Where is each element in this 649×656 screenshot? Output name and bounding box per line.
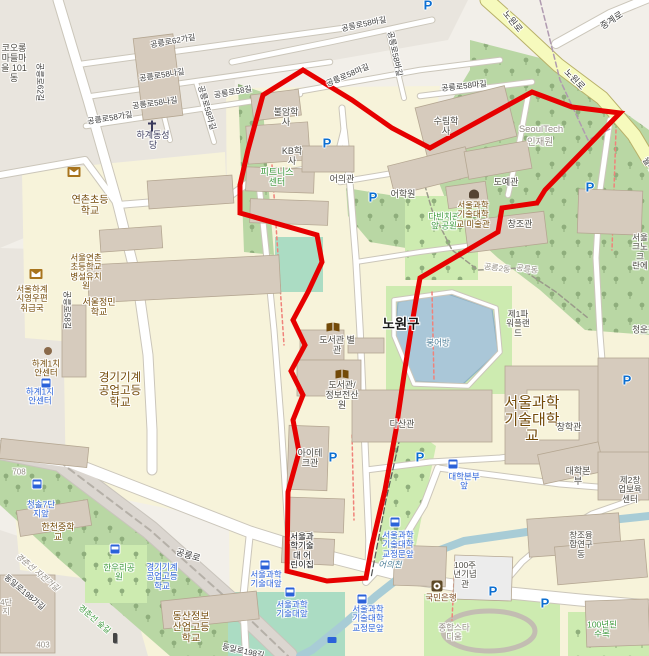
parking-icon[interactable]: P xyxy=(489,584,498,599)
district-gongneung2dong: 공릉2동 xyxy=(483,263,510,275)
pond-name: 붕어방 xyxy=(426,338,449,347)
school-gyeonggi-name: 경기기계 공업고등 학교 xyxy=(99,372,141,410)
district-nowongu: 노원구 xyxy=(382,318,419,333)
road-name-dongilro198gil: 동일로198길 xyxy=(221,643,265,656)
post-icon[interactable] xyxy=(30,269,43,279)
poi-seoultech-en: SeoulTech xyxy=(519,125,563,135)
road-name-junggyero: 중계로 xyxy=(599,10,625,32)
park-davinci-name: 다빈치관 앞 공원 xyxy=(428,213,459,232)
road-name-gongneungro: 공릉로 xyxy=(175,548,202,564)
road-name-58magil-1: 공릉로58마길 xyxy=(325,63,371,89)
parking-icon[interactable]: P xyxy=(424,0,433,13)
road-name-dongilro198gagil: 동일로198가길 xyxy=(2,574,46,613)
parking-icon[interactable]: P xyxy=(329,450,338,465)
road-name-58ragil: 공릉로58라길 xyxy=(195,85,216,131)
parking-icon[interactable]: P xyxy=(369,190,378,205)
bus-icon[interactable] xyxy=(32,479,43,490)
addr-708: 708 xyxy=(12,469,25,478)
school-yeonchon-kinder: 서울연촌 초등학교 병설유치 원 xyxy=(70,253,101,290)
police-icon[interactable] xyxy=(44,347,52,355)
road-name-wolgyero: 월계로 xyxy=(640,156,649,179)
poi-police-name: 하계1치 안센터 xyxy=(32,360,60,379)
bldg-lib-annex-name: 도서관 별 관 xyxy=(319,336,355,356)
road-name-58nagil-2: 공릉로58나길 xyxy=(132,96,178,111)
dorm-bulam-name: 불암학 사 xyxy=(274,108,299,128)
road-name-58gil-1: 공릉로58길 xyxy=(213,85,252,100)
dorm-surim-name: 수림학 사 xyxy=(434,117,459,137)
parking-icon[interactable]: P xyxy=(541,596,550,611)
map-label-layer: 코오롱 마들마 을 101 동공릉로62가길공릉로58나길공릉로58나길공릉로5… xyxy=(0,0,649,656)
bldg-changjo-name: 창조관 xyxy=(508,220,533,230)
bus-icon[interactable] xyxy=(41,378,52,389)
bldg-100th-name: 100주 년기념 관 xyxy=(453,561,476,589)
school-hancheon-name: 한천중학 교 xyxy=(41,523,74,543)
post-icon[interactable] xyxy=(68,167,81,177)
book-icon[interactable] xyxy=(336,370,349,379)
bldg-dasan-name: 다산관 xyxy=(390,420,415,430)
stadium-name: 종합스타 디움 xyxy=(438,624,469,643)
bldg-technopark-name: 서울 크노 크 란에 xyxy=(632,233,648,270)
traffic-icon[interactable] xyxy=(113,633,117,643)
bus-icon[interactable] xyxy=(110,544,121,555)
road-name-62gagil: 공릉로62가길 xyxy=(150,34,197,51)
poi-daycare-name: 서울과 학기술 대 어 린이집 xyxy=(290,532,313,569)
bldg-itech-name: 아이테 크관 xyxy=(298,449,323,469)
poi-post-office: 서울하계 시영우편 취급국 xyxy=(16,285,47,313)
road-name-58nagil-1: 공릉로58나길 xyxy=(139,68,186,84)
parking-icon[interactable]: P xyxy=(416,450,425,465)
moto-icon[interactable] xyxy=(328,637,337,643)
park-name-supgil: 경춘선 숲길 xyxy=(76,604,112,636)
bldg-doye-name: 도예관 xyxy=(494,178,519,188)
busstop-gyeonggi: 경기기계 공업고등 학교 xyxy=(146,563,177,591)
road-name-58gil-2: 공릉로58길 xyxy=(62,291,71,329)
poi-100yr-tree: 100년된 수목 xyxy=(587,621,617,640)
busstop-police: 하계1치 안센터 xyxy=(26,388,54,407)
road-name-58bagil-1: 공릉로58바길 xyxy=(341,16,388,34)
addr-403: 403 xyxy=(36,642,49,651)
apt-kolon-name: 코오롱 마들마 을 101 동 xyxy=(1,44,27,84)
road-name-58gagil: 공릉로58가길 xyxy=(87,111,134,127)
bldg-euiui-name: 어의관 xyxy=(330,175,355,185)
school-yeonchon-name: 연촌초등 학교 xyxy=(72,195,109,217)
district-gongneungdong: 공릉동 xyxy=(515,264,538,276)
campus-name-big: 서울과학 기술대학 교 xyxy=(504,395,559,445)
busstop-seoultech-1: 서울과학 기술대앞 xyxy=(250,571,281,590)
poi-hagye-cathedral: 하계동성 당 xyxy=(136,131,169,151)
school-dongsan-name: 동산정보 산업고등 학교 xyxy=(173,612,210,645)
bldg-changjo-res-name: 창조융 합연구 동 xyxy=(569,531,592,559)
bldg-language-name: 어학원 xyxy=(391,190,416,200)
road-name-62gil: 공릉로62길 xyxy=(35,63,44,101)
poi-fitness-name: 피트니스 센터 xyxy=(260,168,293,188)
rail-name-bikepath: 경춘선 자전거길 xyxy=(14,552,61,593)
map-canvas[interactable]: 코오롱 마들마 을 101 동공릉로62가길공릉로58나길공릉로58나길공릉로5… xyxy=(0,0,649,656)
bldg-hq-name: 대학본 부 xyxy=(566,467,591,487)
road-name-nowonro-2: 노원로 xyxy=(562,68,587,93)
stream-name: 어의천 xyxy=(378,560,401,569)
bldg-cheongun-name: 청운관 xyxy=(632,325,649,334)
bus-icon[interactable] xyxy=(448,459,459,470)
road-name-58magil-2: 공릉로58마길 xyxy=(441,80,487,94)
parking-icon[interactable]: P xyxy=(623,373,632,388)
dorm-kb-name: KB학 사 xyxy=(282,147,302,167)
bldg-powerplant-name: 제1파 워플랜 드 xyxy=(506,310,529,338)
poi-museum-name: 서울과학 기술대학 교 미술관 xyxy=(456,201,490,229)
church-icon[interactable] xyxy=(151,121,153,132)
museum-icon[interactable] xyxy=(469,190,479,199)
book-icon[interactable] xyxy=(327,323,340,332)
bus-icon[interactable] xyxy=(390,517,401,528)
busstop-gate-2: 서울과학 기술대학 교정문앞 xyxy=(352,605,383,633)
bank-icon[interactable] xyxy=(432,581,443,592)
addr-4danji: 4단 지 xyxy=(0,599,12,617)
park-hanwoori-name: 한우리공 원 xyxy=(103,564,134,583)
parking-icon[interactable]: P xyxy=(323,136,332,151)
busstop-seoultech-2: 서울과학 기술대앞 xyxy=(276,601,307,620)
bus-icon[interactable] xyxy=(357,594,368,605)
road-name-nowonro-1: 노원로 xyxy=(500,9,524,34)
bldg-changhak-name: 창학관 xyxy=(557,423,582,433)
bus-icon[interactable] xyxy=(260,560,271,571)
parking-icon[interactable]: P xyxy=(586,180,595,195)
busstop-hq: 대학본부 앞 xyxy=(448,473,479,492)
bldg-incubator2-name: 제2창 업보육 센터 xyxy=(618,476,641,504)
poi-injaewon: 인재원 xyxy=(527,138,553,148)
poi-kb-bank-name: 국민은행 xyxy=(425,593,456,602)
busstop-cheongsol: 청솔7단 지앞 xyxy=(27,501,55,520)
bus-icon[interactable] xyxy=(285,587,296,598)
bldg-library-name: 도서관/ 정보전산 원 xyxy=(325,381,358,411)
road-name-58bagil-2: 공릉로58바길 xyxy=(385,31,403,78)
school-jeongmin-name: 서울정민 학교 xyxy=(82,298,115,318)
busstop-gate-1: 서울과학 기술대학 교정문앞 xyxy=(382,531,413,559)
